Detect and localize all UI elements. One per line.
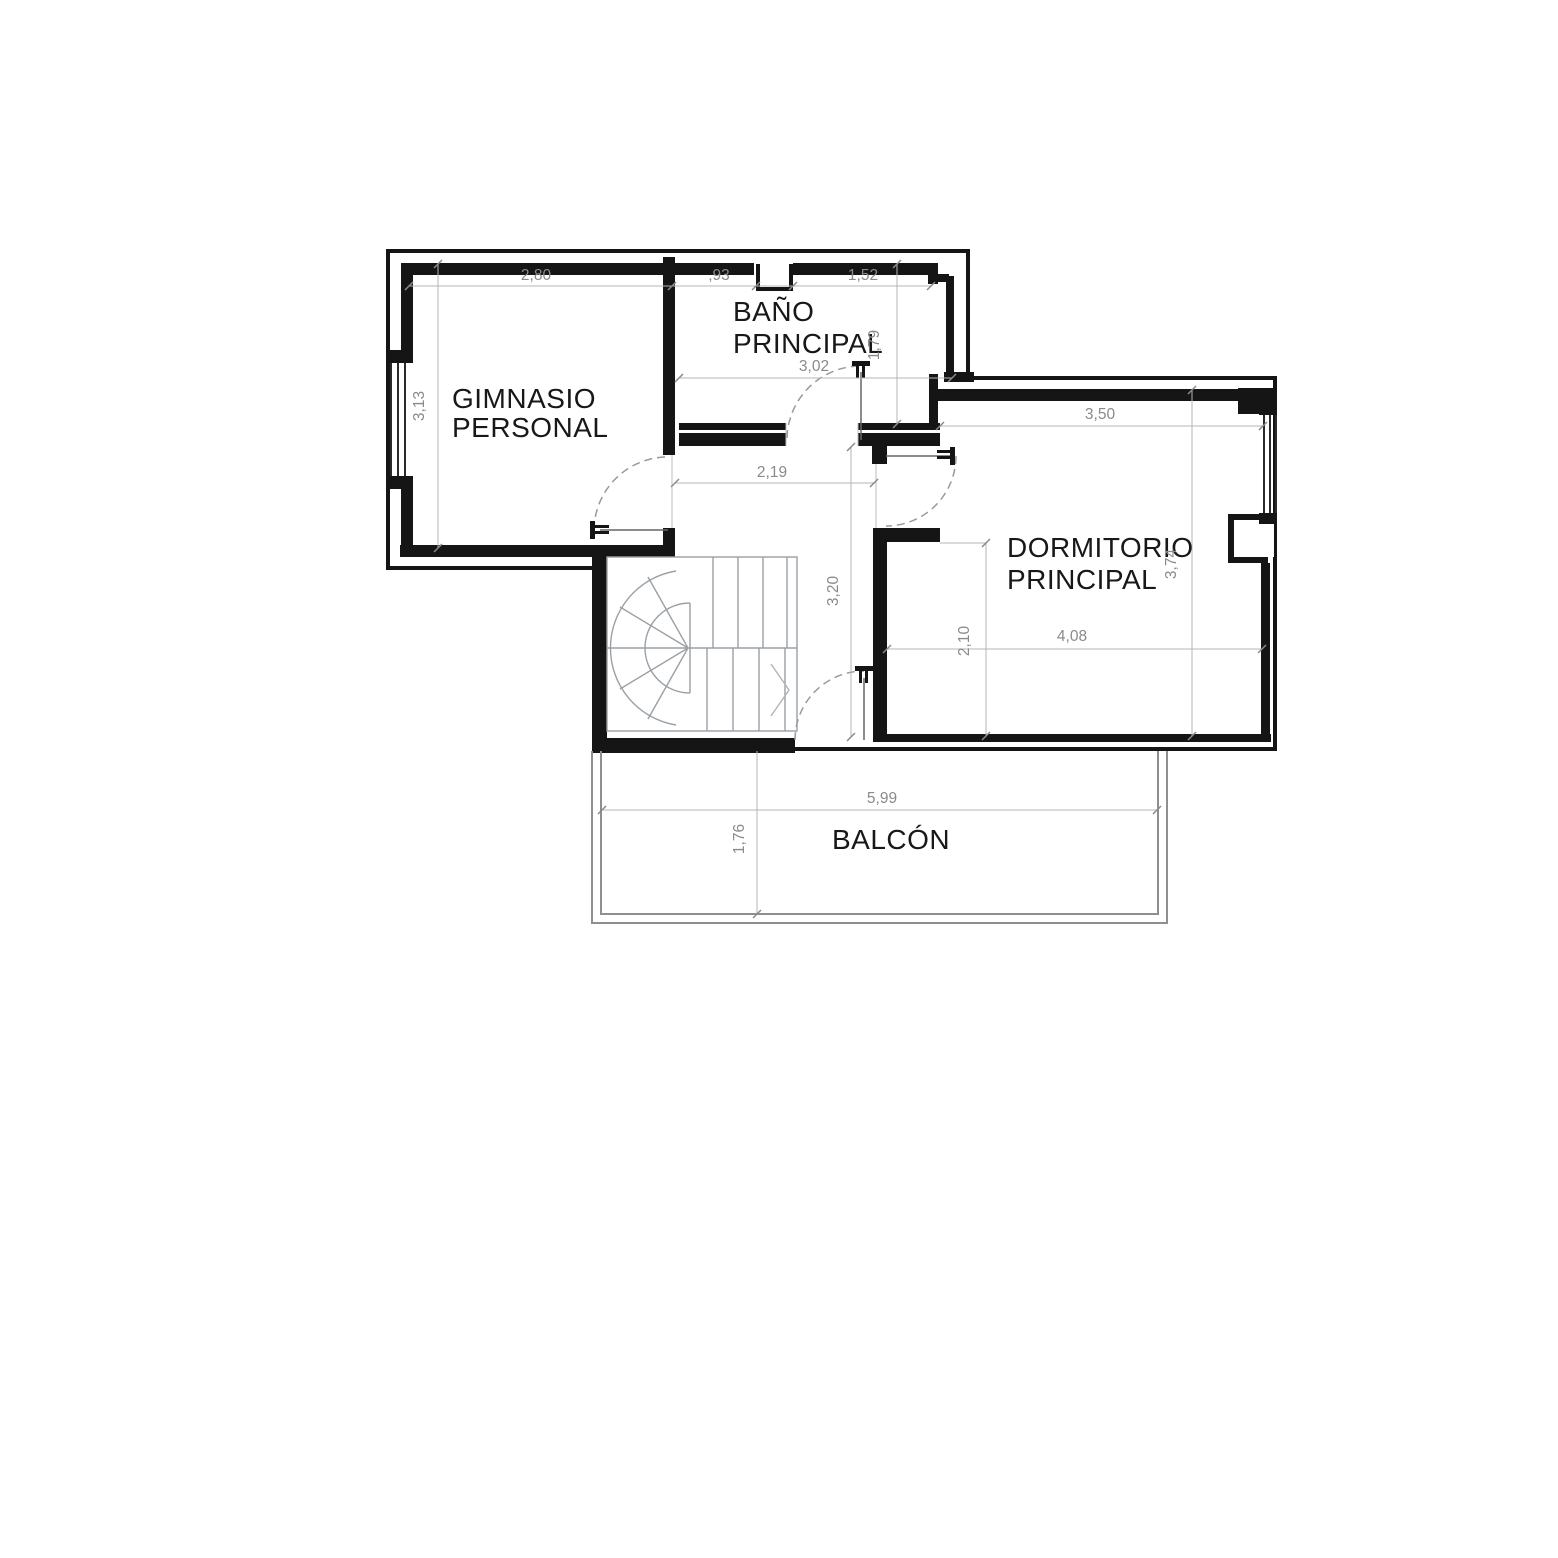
room-label-gym-line1: GIMNASIO [452,383,596,414]
dim-bedroom-partial-height: 2,10 [956,626,973,657]
room-label-bath-line1: BAÑO [733,296,814,327]
floor-plan: GIMNASIO PERSONAL BAÑO PRINCIPAL DORMITO… [0,0,1558,1558]
dim-balcony-depth: 1,76 [731,824,748,854]
floor-plan-page: GIMNASIO PERSONAL BAÑO PRINCIPAL DORMITO… [0,0,1558,1558]
dim-bedroom-top: 3,50 [1085,406,1116,423]
dim-bath-height: 1,79 [866,330,883,360]
duct-notch [758,264,791,289]
dim-hall-width: 2,19 [757,464,787,481]
dim-hall-height: 3,20 [825,576,842,607]
room-label-gym-line2: PERSONAL [452,412,609,443]
exterior-outer-line [388,251,1275,749]
dim-bedroom-height: 3,74 [1163,549,1180,580]
dim-bath-seg-left: ,93 [708,267,730,284]
dim-bedroom-width: 4,08 [1057,628,1087,645]
balcony-door-swing [795,671,864,740]
bedroom-door-leaf-icon [937,447,955,465]
dim-balcony-width: 5,99 [867,790,897,807]
walls [386,251,1277,753]
dim-bath-seg-right: 1,52 [848,267,878,284]
dim-bath-width: 3,02 [799,358,829,375]
staircase [607,557,797,731]
dim-gym-width: 2,80 [521,267,552,284]
room-label-balcony: BALCÓN [832,824,950,855]
gym-west-window [391,363,405,476]
room-label-bath-line2: PRINCIPAL [733,328,883,359]
room-label-bedroom-line2: PRINCIPAL [1007,564,1157,595]
bedroom-door-swing [886,456,956,526]
gym-door-swing [594,457,665,529]
dim-gym-height: 3,13 [411,391,428,421]
bath-door-swing [787,366,860,438]
